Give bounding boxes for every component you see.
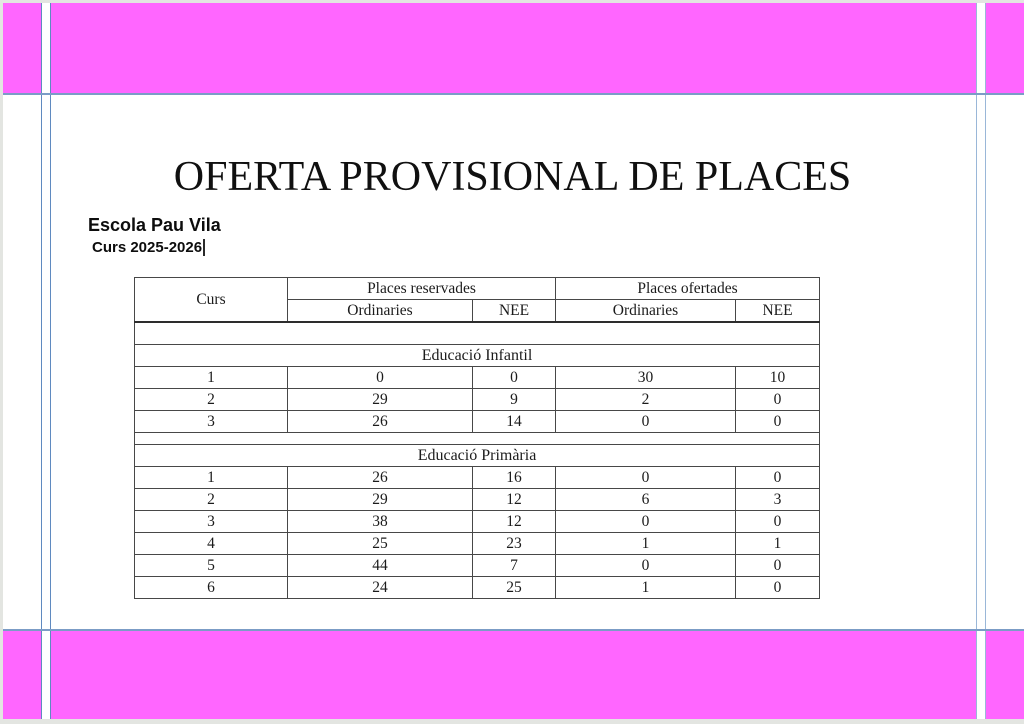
table-row: 4252311 <box>135 533 820 555</box>
cell-value[interactable]: 0 <box>473 367 556 389</box>
course-line[interactable]: Curs 2025-2026 <box>92 239 205 256</box>
table-row: 1003010 <box>135 367 820 389</box>
header-nee-reservades[interactable]: NEE <box>473 300 556 323</box>
places-table: Curs Places reservades Places ofertades … <box>134 277 820 599</box>
cell-value[interactable]: 23 <box>473 533 556 555</box>
table-row: 6242510 <box>135 577 820 599</box>
cell-value[interactable]: 44 <box>288 555 473 577</box>
cell-value[interactable]: 7 <box>473 555 556 577</box>
cell-curs[interactable]: 3 <box>135 411 288 433</box>
section-primaria: Educació Primària12616002291263338120042… <box>135 445 820 599</box>
cell-value[interactable]: 12 <box>473 489 556 511</box>
cell-value[interactable]: 0 <box>556 511 736 533</box>
document-body: OFERTA PROVISIONAL DE PLACES Escola Pau … <box>3 3 1024 719</box>
section-label[interactable]: Educació Infantil <box>135 345 820 367</box>
app-window: OFERTA PROVISIONAL DE PLACES Escola Pau … <box>0 0 1024 724</box>
text-cursor <box>203 239 205 256</box>
section-label[interactable]: Educació Primària <box>135 445 820 467</box>
section-header-row: Educació Primària <box>135 445 820 467</box>
cell-curs[interactable]: 1 <box>135 467 288 489</box>
header-curs[interactable]: Curs <box>135 278 288 323</box>
cell-value[interactable]: 0 <box>736 411 820 433</box>
cell-value[interactable]: 25 <box>473 577 556 599</box>
cell-curs[interactable]: 2 <box>135 489 288 511</box>
cell-value[interactable]: 0 <box>556 555 736 577</box>
cell-curs[interactable]: 6 <box>135 577 288 599</box>
cell-value[interactable]: 24 <box>288 577 473 599</box>
cell-curs[interactable]: 5 <box>135 555 288 577</box>
cell-value[interactable]: 38 <box>288 511 473 533</box>
cell-value[interactable]: 30 <box>556 367 736 389</box>
cell-value[interactable]: 26 <box>288 411 473 433</box>
cell-value[interactable]: 0 <box>736 389 820 411</box>
cell-value[interactable]: 1 <box>556 533 736 555</box>
cell-value[interactable]: 12 <box>473 511 556 533</box>
cell-value[interactable]: 1 <box>556 577 736 599</box>
header-nee-ofertades[interactable]: NEE <box>736 300 820 323</box>
spacer-row <box>135 322 820 345</box>
cell-value[interactable]: 0 <box>288 367 473 389</box>
group-header-row: Curs Places reservades Places ofertades <box>135 278 820 300</box>
header-ordinaries-reservades[interactable]: Ordinaries <box>288 300 473 323</box>
cell-curs[interactable]: 4 <box>135 533 288 555</box>
table-header: Curs Places reservades Places ofertades … <box>135 278 820 323</box>
cell-value[interactable]: 16 <box>473 467 556 489</box>
section-header-row: Educació Infantil <box>135 345 820 367</box>
table-row: 1261600 <box>135 467 820 489</box>
cell-value[interactable]: 0 <box>736 467 820 489</box>
cell-value[interactable]: 2 <box>556 389 736 411</box>
course-text[interactable]: Curs 2025-2026 <box>92 239 202 256</box>
table-row: 544700 <box>135 555 820 577</box>
cell-value[interactable]: 1 <box>736 533 820 555</box>
table-row: 2291263 <box>135 489 820 511</box>
cell-value[interactable]: 0 <box>556 467 736 489</box>
header-places-reservades[interactable]: Places reservades <box>288 278 556 300</box>
table-row: 229920 <box>135 389 820 411</box>
cell-curs[interactable]: 2 <box>135 389 288 411</box>
document-page: OFERTA PROVISIONAL DE PLACES Escola Pau … <box>3 3 1024 719</box>
spacer-row <box>135 433 820 445</box>
cell-curs[interactable]: 1 <box>135 367 288 389</box>
section-infantil: Educació Infantil10030102299203261400 <box>135 345 820 433</box>
cell-value[interactable]: 14 <box>473 411 556 433</box>
cell-value[interactable]: 0 <box>736 577 820 599</box>
cell-value[interactable]: 3 <box>736 489 820 511</box>
cell-value[interactable]: 0 <box>736 555 820 577</box>
cell-value[interactable]: 25 <box>288 533 473 555</box>
cell-value[interactable]: 26 <box>288 467 473 489</box>
header-ordinaries-ofertades[interactable]: Ordinaries <box>556 300 736 323</box>
cell-value[interactable]: 6 <box>556 489 736 511</box>
table-row: 3261400 <box>135 411 820 433</box>
cell-value[interactable]: 29 <box>288 389 473 411</box>
cell-value[interactable]: 10 <box>736 367 820 389</box>
document-title[interactable]: OFERTA PROVISIONAL DE PLACES <box>48 150 977 205</box>
cell-value[interactable]: 0 <box>736 511 820 533</box>
school-name[interactable]: Escola Pau Vila <box>88 215 221 236</box>
cell-curs[interactable]: 3 <box>135 511 288 533</box>
cell-value[interactable]: 0 <box>556 411 736 433</box>
cell-value[interactable]: 9 <box>473 389 556 411</box>
header-places-ofertades[interactable]: Places ofertades <box>556 278 820 300</box>
table-row: 3381200 <box>135 511 820 533</box>
cell-value[interactable]: 29 <box>288 489 473 511</box>
